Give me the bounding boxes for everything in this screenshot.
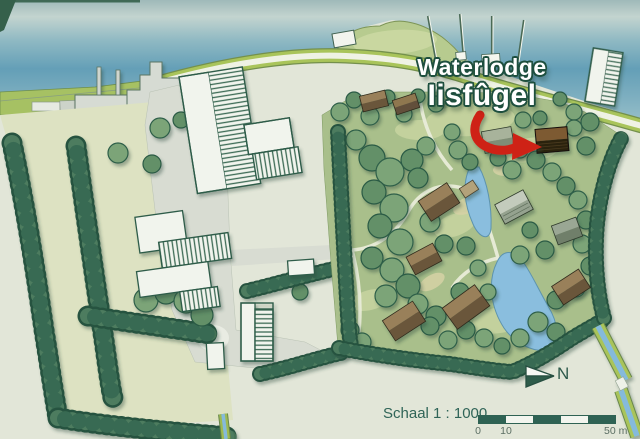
scale-label: Schaal 1 : 1000 [383,405,487,422]
scale-segment [478,415,505,424]
barn-south [241,303,273,361]
highlighted-lodge [535,127,569,154]
north-arrow-icon [523,362,557,390]
scale-segment [534,415,561,424]
north-label: N [557,364,569,384]
north-arrow: N [523,362,593,390]
scale-segment [505,415,534,424]
chimney [97,67,101,95]
shed-east [288,259,315,276]
scale-tick-50m: 50 m [604,425,627,437]
sign-panel [456,52,467,61]
scale-segment [560,415,589,424]
scale-segment [589,415,616,424]
ditch [223,414,226,439]
scale-tick-0: 0 [475,425,481,437]
sign-panel [482,53,501,66]
scale-tick-10: 10 [500,425,512,437]
shed-south [206,343,224,370]
site-plan-map: Waterlodge Iisfûgel N Schaal 1 : 1000 0 … [0,0,640,439]
chimney [116,70,120,95]
scale-bar [478,415,616,424]
